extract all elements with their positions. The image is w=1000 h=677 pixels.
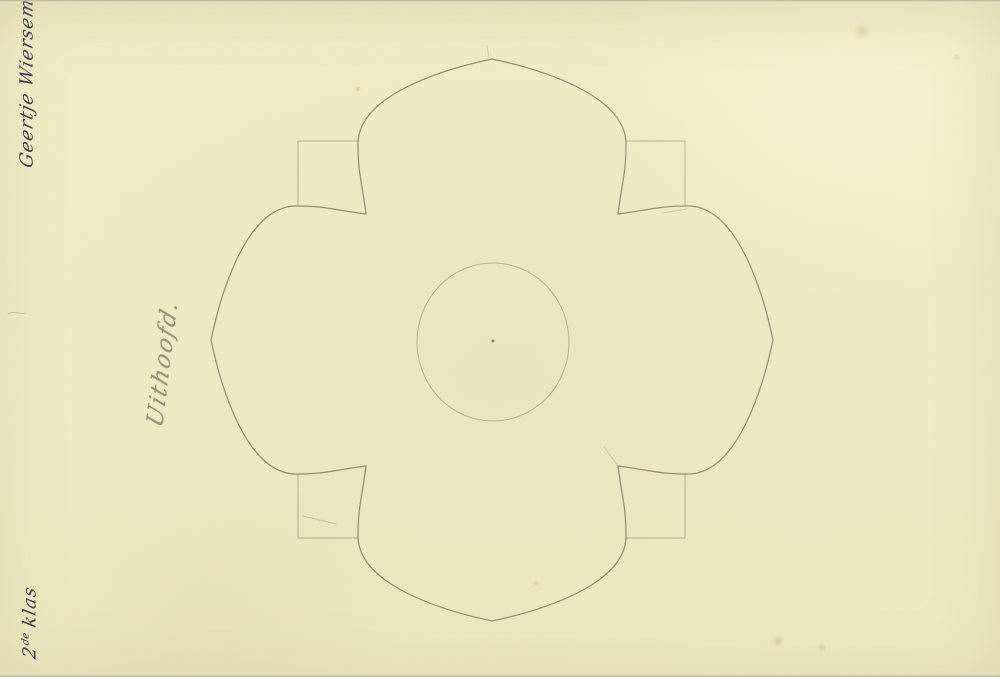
class-label: 2de klas: [20, 576, 41, 668]
class-ordinal-suffix: de: [21, 632, 32, 647]
rosette-drawing-svg: [0, 0, 1000, 677]
paper-grain-texture: [0, 0, 1000, 677]
class-word: klas: [20, 584, 41, 629]
scanned-drawing-sheet: Geertje Wiersema Uithoofd. 2de klas: [0, 0, 1000, 677]
signature-text: Geertje Wiersema: [17, 0, 38, 170]
